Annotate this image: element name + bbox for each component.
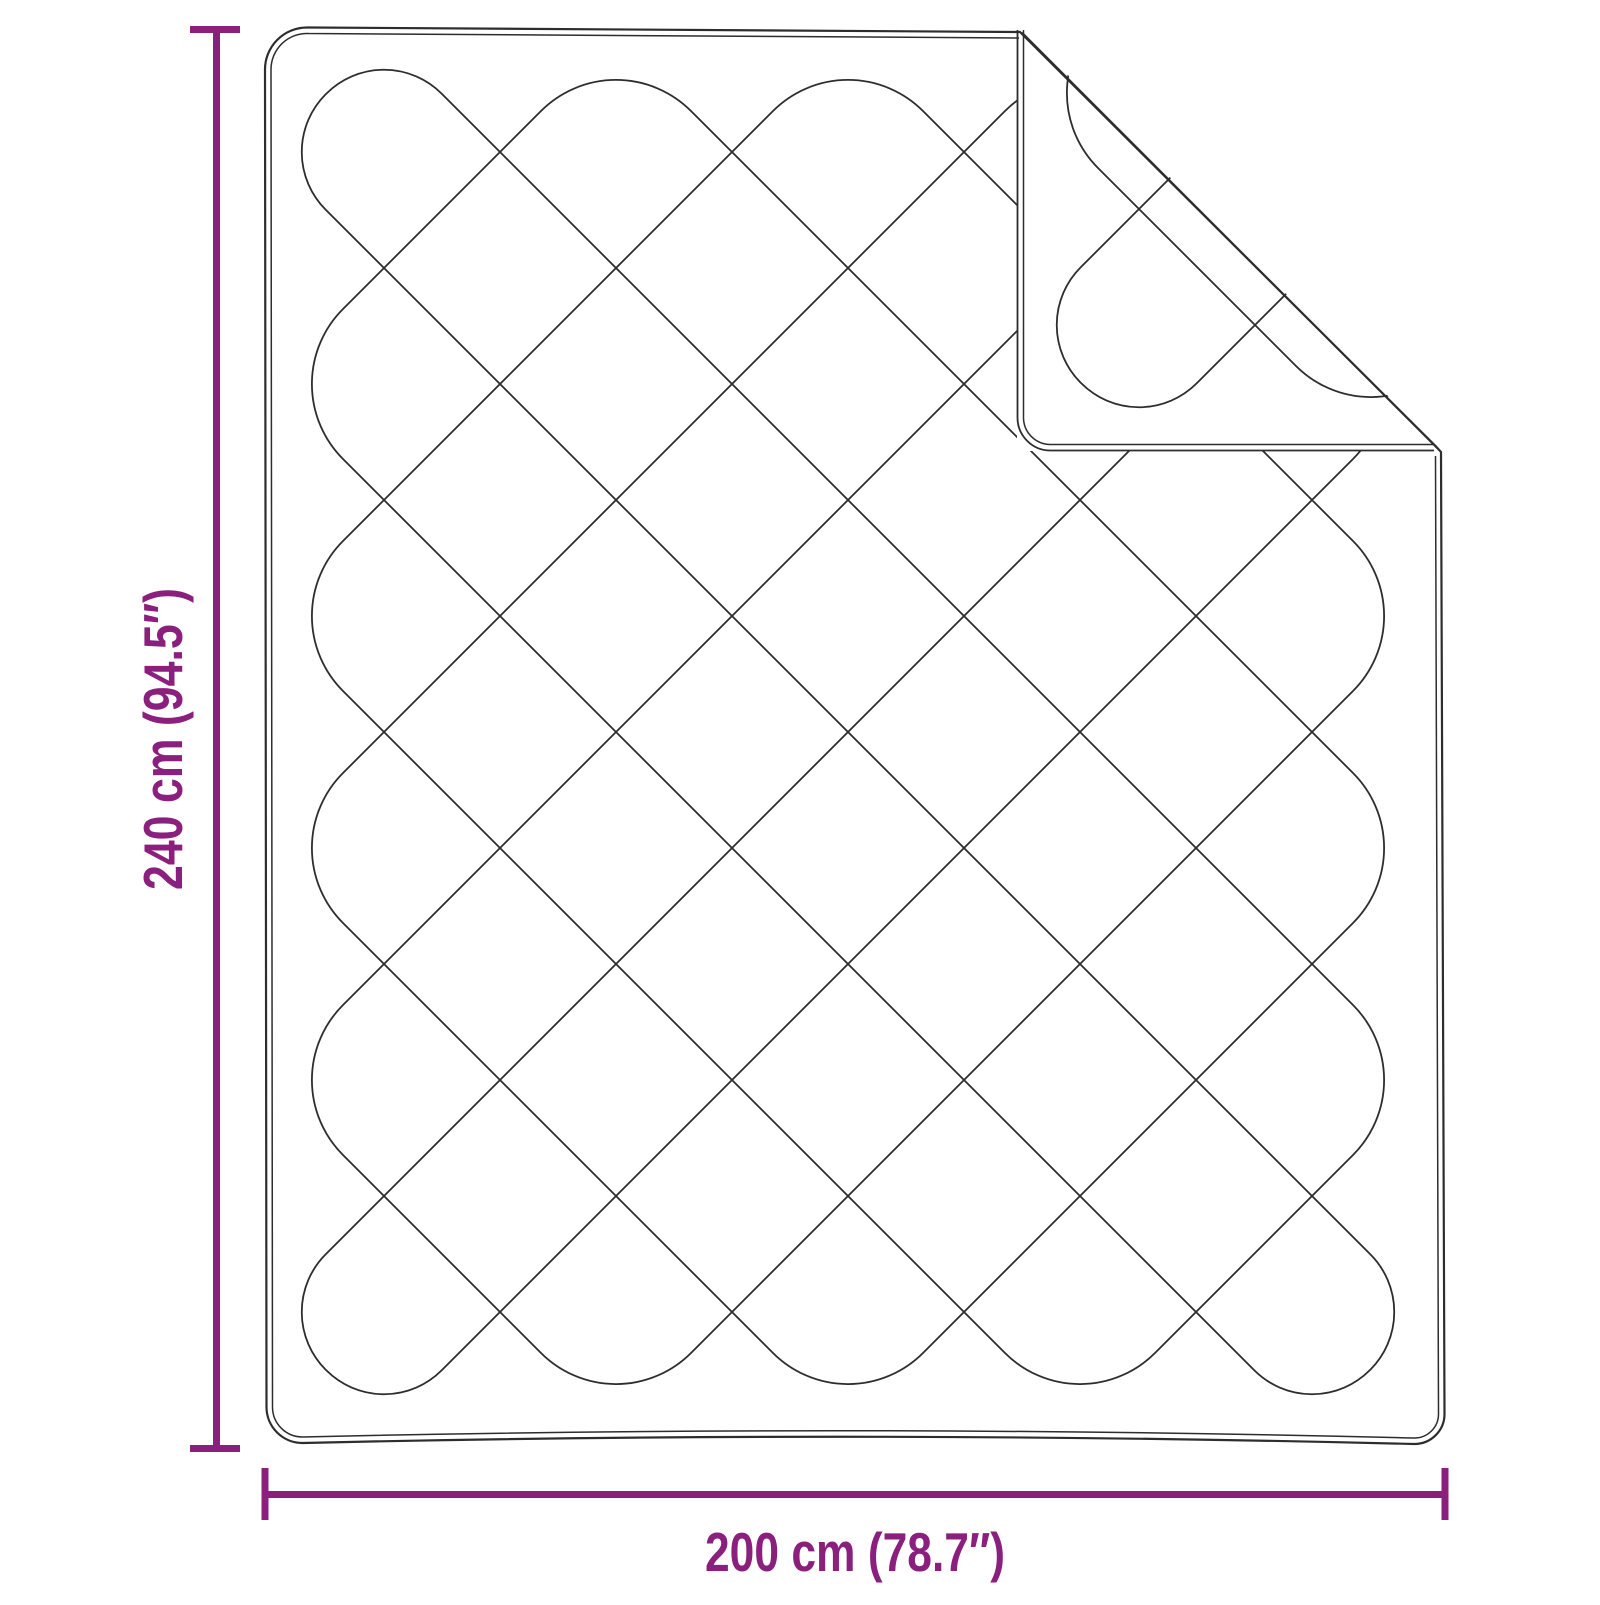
svg-text:240 cm (94.5″): 240 cm (94.5″) bbox=[132, 588, 194, 890]
svg-text:200 cm (78.7″): 200 cm (78.7″) bbox=[705, 1521, 1005, 1583]
